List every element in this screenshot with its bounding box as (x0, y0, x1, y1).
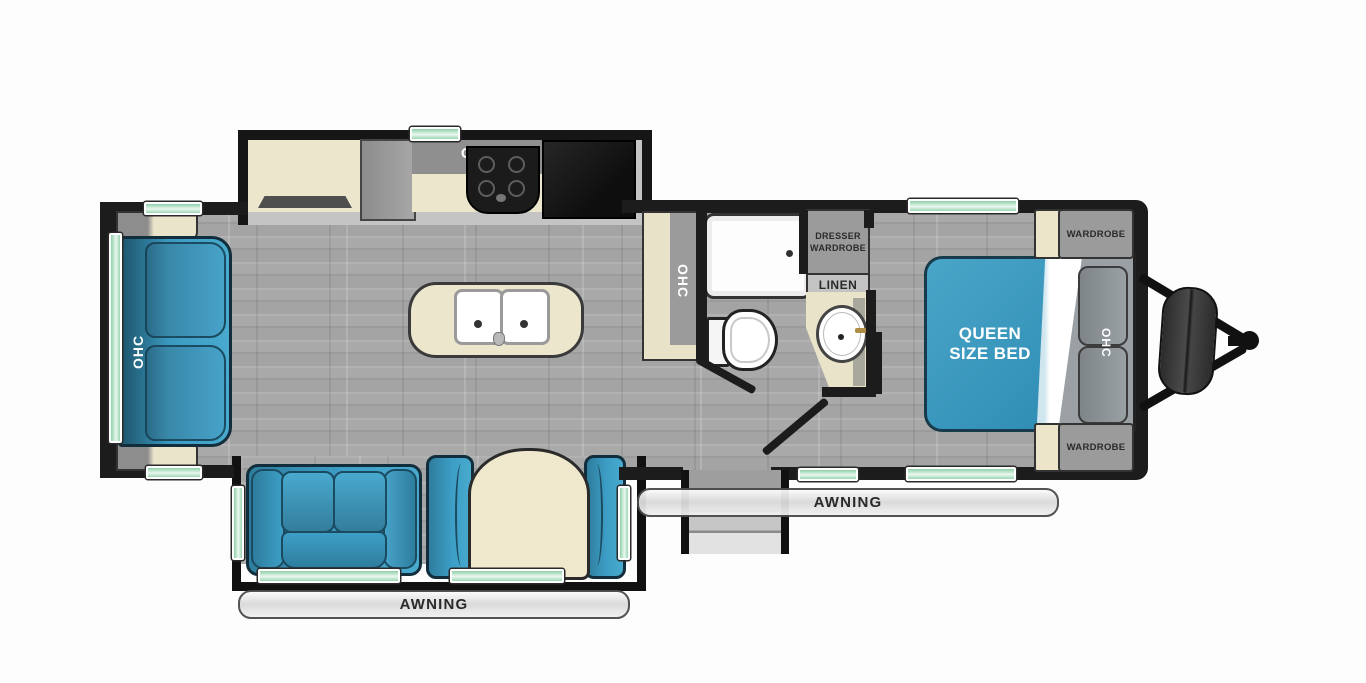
awning-door-side-label: AWNING (814, 494, 883, 511)
queen-bed: QUEEN SIZE BED (924, 256, 1056, 432)
kitchen-tall-cabinet (360, 139, 416, 221)
window (906, 467, 1016, 481)
hitch-ball-icon (1240, 331, 1259, 350)
toilet (706, 307, 776, 367)
window (109, 233, 122, 443)
wardrobe-bottom-label: WARDROBE (1067, 442, 1126, 453)
hall-cabinet-ohc-label: OHC (673, 255, 693, 307)
burner-icon (508, 180, 525, 197)
dinette-bench-curve (591, 464, 603, 566)
queen-bed-label-line1: QUEEN (949, 324, 1031, 344)
awning-main: AWNING (238, 590, 630, 619)
drain-icon (838, 334, 844, 340)
window (144, 202, 202, 215)
window (798, 468, 858, 481)
wardrobe-top: WARDROBE (1058, 209, 1134, 259)
loveseat-armrest (383, 469, 417, 569)
dinette-bench-curve (455, 464, 467, 566)
bottom-wall-mid (619, 467, 683, 480)
toilet-bowl (722, 309, 778, 371)
dresser-wardrobe: DRESSER WARDROBE (806, 209, 870, 277)
queen-bed-label-line2: SIZE BED (949, 344, 1031, 364)
bath-wall-stub (876, 332, 882, 394)
drain-icon (520, 320, 528, 328)
bath-wall (866, 290, 876, 397)
dresser-wardrobe-line2: WARDROBE (810, 243, 866, 255)
window (618, 486, 630, 560)
stove-cooktop (466, 146, 540, 214)
awning-main-label: AWNING (400, 596, 469, 613)
window (908, 199, 1018, 213)
hall-cabinet: OHC (642, 211, 699, 361)
window (410, 127, 460, 141)
loveseat-cushion (281, 471, 335, 533)
bathroom-sink (816, 305, 868, 363)
bath-wall (799, 210, 808, 274)
bath-wall (696, 210, 707, 360)
drain-icon (474, 320, 482, 328)
faucet-icon (493, 332, 505, 346)
floorplan-canvas: OHC (0, 0, 1366, 683)
drain-icon (786, 250, 793, 257)
rear-sofa-ohc-label: OHC (129, 325, 147, 379)
loveseat-armrest (251, 469, 285, 569)
burner-icon (478, 180, 495, 197)
window (146, 466, 202, 479)
linen-label: LINEN (819, 278, 858, 292)
wardrobe-bottom: WARDROBE (1058, 423, 1134, 472)
window (232, 486, 244, 560)
wardrobe-top-label: WARDROBE (1067, 229, 1126, 240)
bath-wall (864, 210, 874, 228)
dinette-bench (426, 455, 474, 579)
window (450, 569, 564, 583)
bedroom-ohc-label: OHC (1098, 318, 1114, 368)
window (258, 569, 400, 583)
dresser-wardrobe-line1: DRESSER (815, 231, 861, 243)
burner-icon (478, 156, 495, 173)
loveseat (246, 464, 422, 576)
shower (704, 213, 812, 299)
loveseat-cushion (333, 471, 387, 533)
burner-knob-icon (496, 194, 506, 202)
vanity-bottom-wall (822, 387, 876, 397)
loveseat-seat (281, 531, 387, 569)
queen-bed-label: QUEEN SIZE BED (949, 324, 1031, 364)
burner-icon (508, 156, 525, 173)
propane-tanks (1156, 285, 1219, 397)
kitchen-counter-tray (258, 196, 352, 208)
rear-sofa: OHC (118, 236, 232, 447)
awning-door-side: AWNING (637, 488, 1059, 517)
dinette-table (468, 448, 590, 580)
sink-basin (500, 289, 550, 345)
